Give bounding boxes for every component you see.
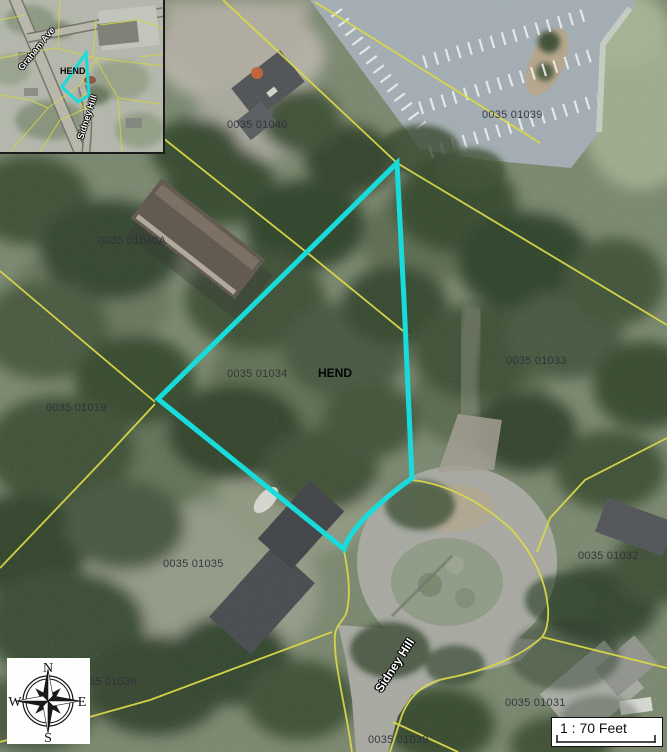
gis-map-viewport[interactable]: 0035 010400035 010390035 01040A0035 0103… — [0, 0, 667, 752]
compass-south-label: S — [44, 731, 52, 744]
compass-rose-graphic: N E S W — [7, 658, 90, 744]
area-label-hend: HEND — [318, 366, 352, 380]
compass-north-label: N — [43, 661, 53, 676]
inset-area-label-hend: HEND — [60, 66, 86, 76]
compass-rose: N E S W — [7, 658, 90, 744]
scale-indicator: 1 : 70 Feet — [551, 717, 663, 747]
compass-main-points — [16, 669, 80, 733]
overview-inset-map[interactable]: Graham Ave Sidney Hill HEND — [0, 0, 165, 154]
scale-text: 1 : 70 Feet — [560, 720, 627, 736]
compass-east-label: E — [78, 695, 87, 710]
compass-west-label: W — [8, 695, 22, 710]
